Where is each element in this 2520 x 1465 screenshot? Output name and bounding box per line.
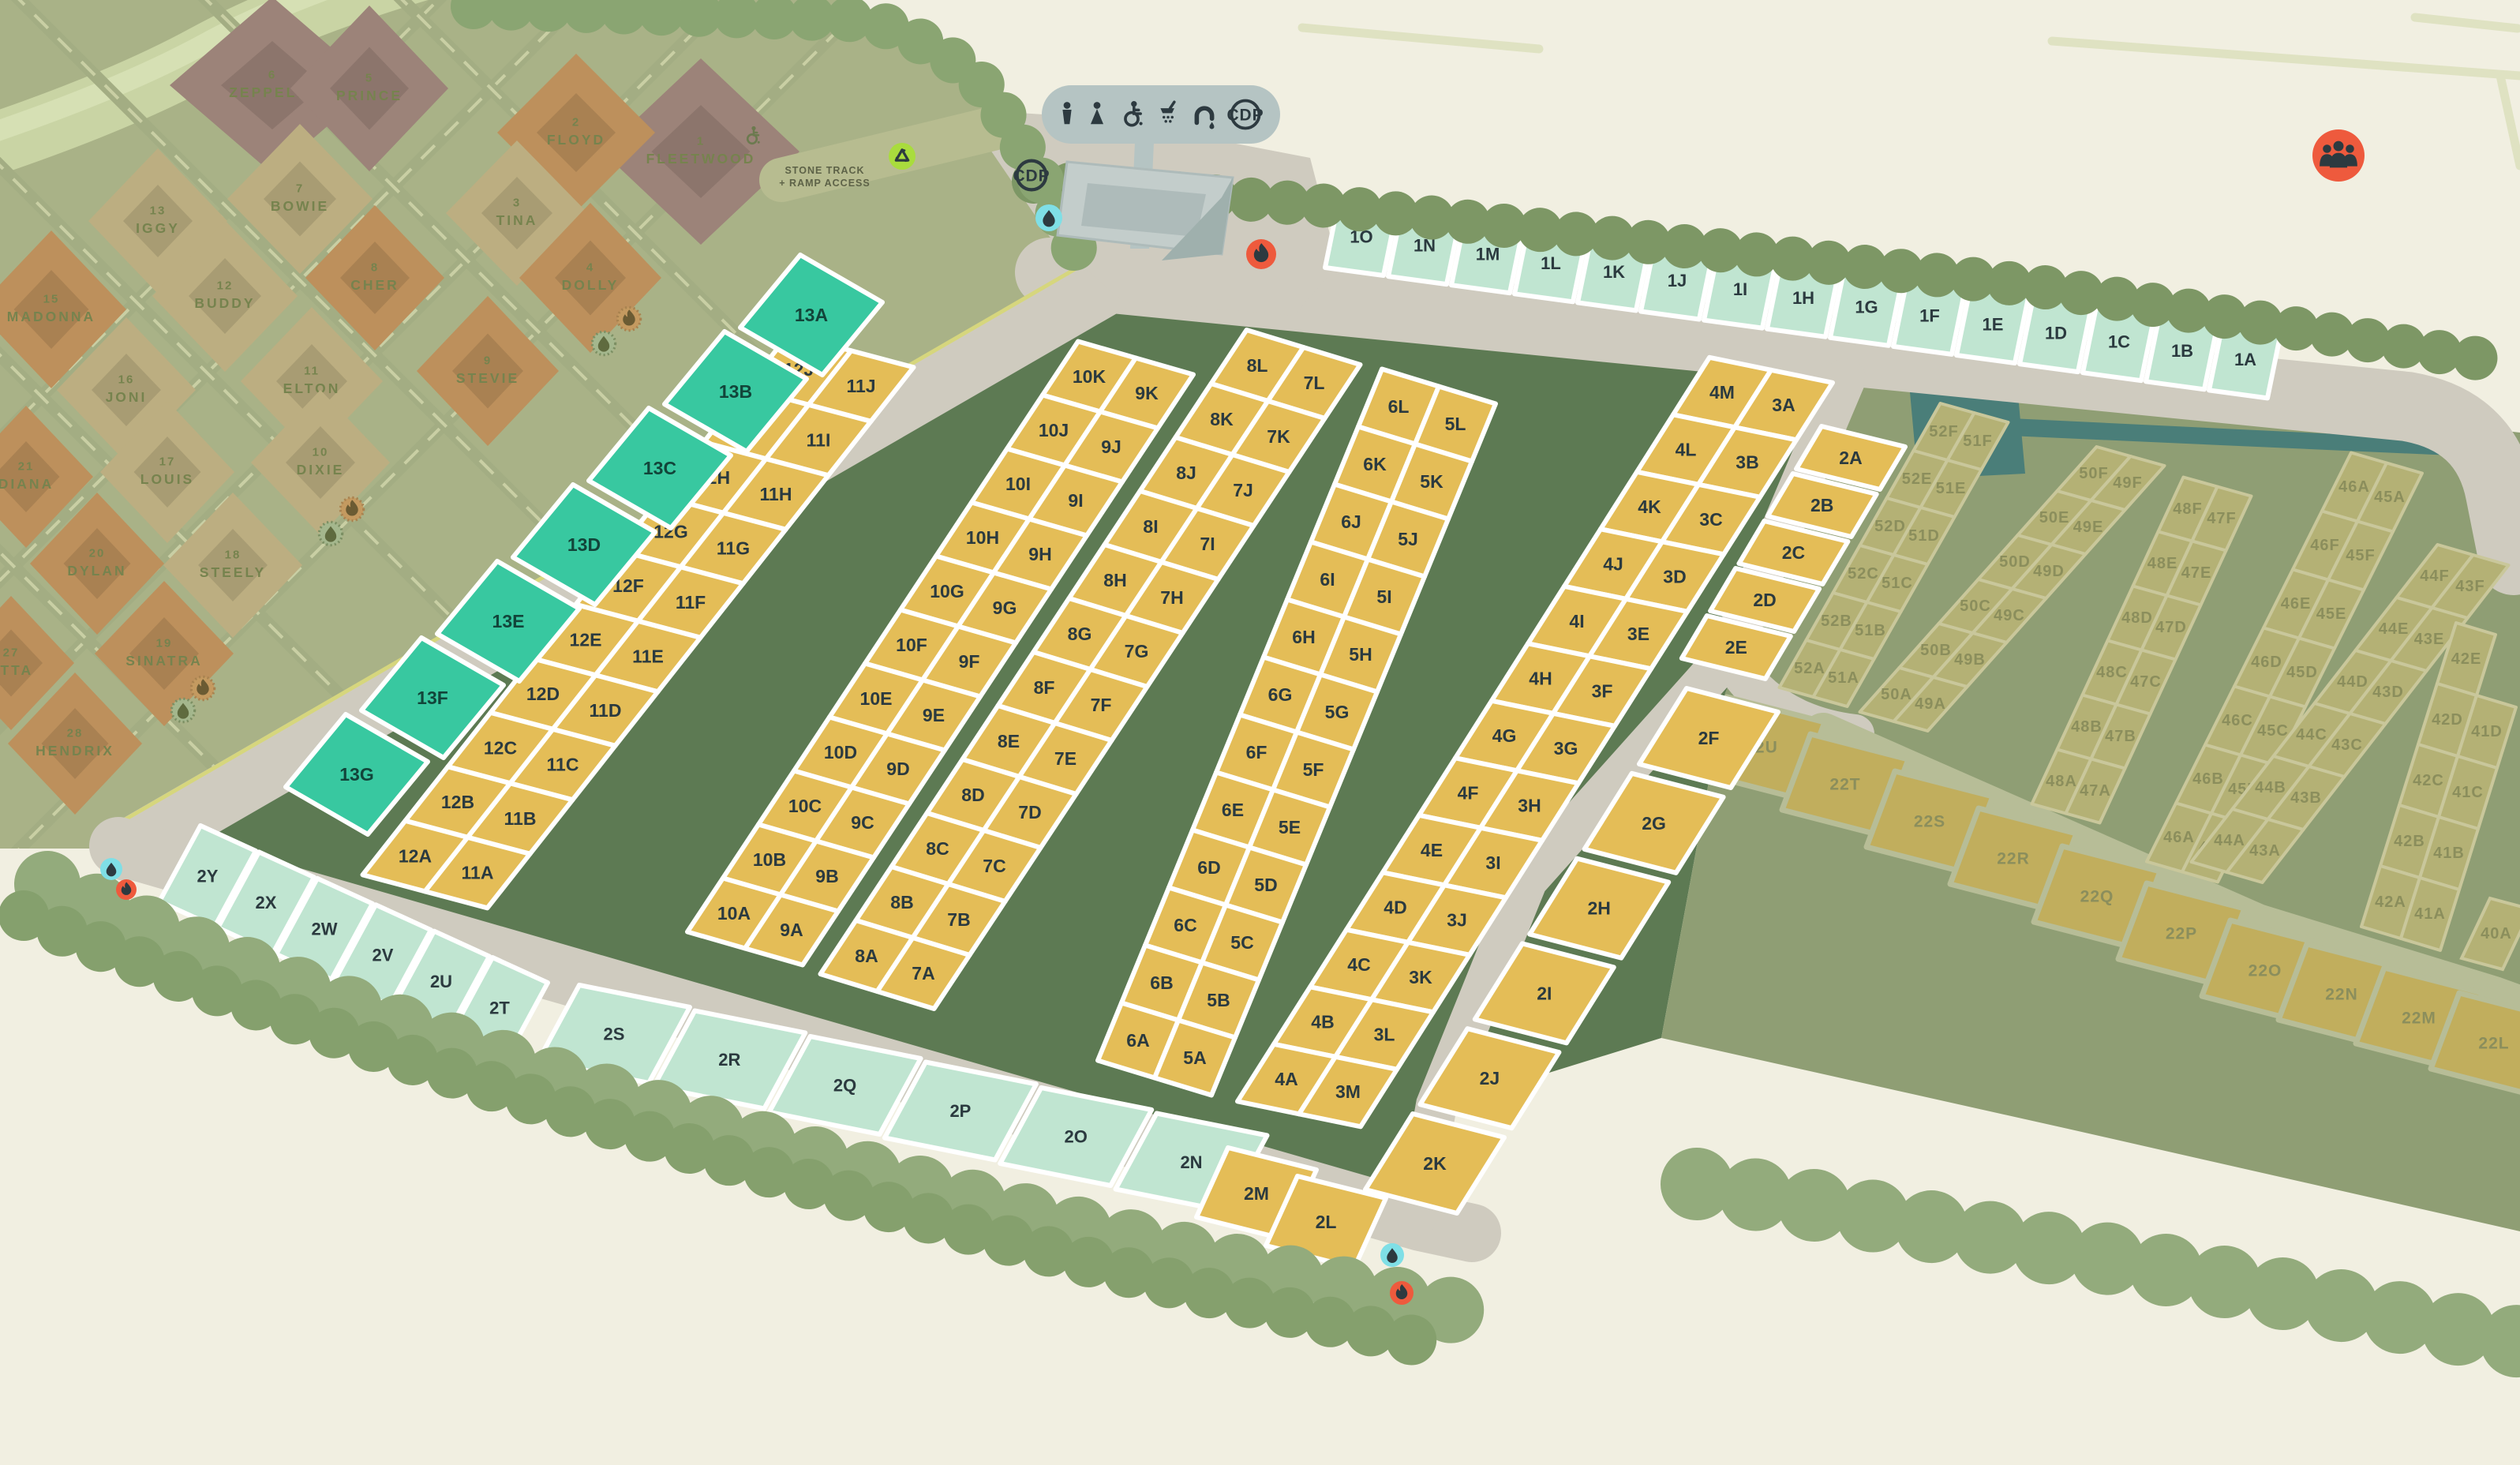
plot-label: 12D [526,684,560,704]
plot-label: 5F [1303,759,1324,780]
plot-number: 18 [225,549,242,562]
plot-label: 11H [760,484,792,504]
plot-label: 51A [1828,669,1859,687]
plot-label: 2I [1537,983,1552,1003]
plot-label: 12E [570,630,602,650]
plot-label: 5E [1279,817,1301,837]
water-icon-muted [319,522,342,545]
plot-label: 1H [1792,288,1814,308]
fire-icon [1246,239,1276,269]
plot-label: 46C [2222,712,2253,729]
plot-label: 10F [896,635,927,655]
plot-label: 1D [2045,324,2067,343]
plot-label: 6D [1197,857,1220,878]
plot-label: 44D [2337,673,2368,691]
plot-label: 11E [632,646,664,667]
fire-icon-muted [340,497,363,520]
plot-label: 50A [1881,686,1912,703]
plot-label: 7H [1160,587,1183,608]
plot-label: 50D [1999,553,2031,571]
plot-label: 4H [1529,669,1552,689]
plot-label: 46A [2338,478,2370,496]
plot-label: 11J [846,376,875,396]
plot-name: HENDRIX [36,743,114,759]
plot-name: IGGY [136,220,180,236]
plot-label: 43E [2414,631,2445,648]
plot-label: 6K [1363,454,1387,474]
plot-label: 49D [2033,563,2065,580]
plot-label: 2G [1642,813,1666,834]
plot-label: 1K [1603,262,1625,282]
plot-label: 5H [1349,644,1372,665]
plot-name: STEVIE [456,370,519,386]
plot-label: 4E [1421,840,1443,860]
plot-label: 1J [1668,271,1687,290]
fire-icon-muted [191,676,214,699]
plot-label: 1A [2234,350,2256,369]
plot-label: 42B [2394,833,2425,850]
plot-label: 5C [1230,932,1253,953]
plot-name: ETTA [0,662,33,678]
plot-label: 41D [2471,723,2503,740]
plot-label: 22Q [2080,888,2114,906]
plot-label: 7A [912,963,934,984]
plot-label: 1L [1541,253,1561,273]
plot-label: 3H [1518,796,1541,816]
plot-label: 1F [1919,305,1940,325]
plot-label: 10J [1039,420,1069,440]
plot-label: 7G [1125,641,1149,661]
plot-label: 51B [1855,622,1886,639]
plot-label: 42D [2432,711,2463,729]
plot-label: 50B [1920,642,1952,659]
plot-label: 3F [1592,681,1613,702]
water-icon-muted [592,332,615,354]
plot-label: 2R [718,1050,740,1070]
plot-label: 8F [1034,677,1055,698]
plot-label: 3A [1772,395,1795,415]
plot-label: 45D [2286,664,2318,681]
plot-label: 8E [998,731,1020,751]
plot-label: 13B [719,381,752,402]
plot-name: LOUIS [140,471,194,487]
plot-label: 9E [923,705,945,725]
plot-label: 52B [1821,613,1852,630]
plot-label: 8A [855,946,878,966]
plot-label: 10G [930,581,964,601]
plot-label: 49F [2113,474,2142,492]
plot-label: 10D [824,742,857,762]
plot-label: 2J [1480,1068,1500,1088]
plot-label: 3L [1374,1025,1395,1045]
plot-label: 8K [1210,409,1234,429]
plot-name: PRINCE [336,88,403,103]
plot-name: SINATRA [125,653,202,669]
plot-label: 4J [1603,554,1623,575]
plot-label: 2D [1753,590,1776,610]
plot-label: 49C [1994,607,2025,624]
plot-label: 8H [1103,570,1126,590]
plot-label: 11I [807,430,831,451]
plot-number: 10 [313,446,329,459]
plot-number: 5 [365,72,373,85]
plot-label: 52D [1874,518,1906,535]
plot-label: 8B [890,892,913,912]
plot-label: 9G [993,598,1017,618]
plot-number: 15 [43,293,60,306]
water-icon [100,858,122,880]
plot-label: 52E [1902,470,1933,488]
plot-name: ELTON [283,380,341,396]
plot-label: 6J [1341,511,1361,532]
plot-label: 3G [1554,738,1578,759]
plot-label: 4G [1492,725,1517,746]
plot-label: 2C [1782,542,1805,563]
plot-label: 1M [1476,245,1500,264]
plot-label: 22R [1997,850,2030,868]
plot-number: 27 [3,646,20,660]
plot-label: 1B [2171,341,2193,361]
plot-label: 13G [339,764,373,785]
plot-label: 41C [2452,784,2484,801]
plot-label: 47D [2155,619,2187,636]
plot-label: 47E [2181,564,2212,582]
plot-label: 2B [1810,495,1833,515]
plot-number: 1 [697,135,705,148]
plot-label: 22T [1829,776,1860,794]
plot-label: 47F [2207,510,2236,527]
plot-label: 1C [2108,332,2130,352]
plot-label: 6G [1268,684,1293,705]
plot-number: 6 [268,69,276,82]
plot-label: 48E [2147,555,2178,572]
plot-label: 51E [1936,480,1967,497]
plot-label: 22N [2325,986,2358,1004]
plot-label: 6C [1174,915,1196,935]
plot-label: 51F [1963,433,1992,450]
plot-number: 19 [156,637,173,650]
plot-name: FLOYD [547,132,605,148]
plot-label: 8D [961,785,984,805]
plot-label: 22O [2249,962,2282,980]
plot-label: 2A [1839,448,1862,468]
plot-label: 47B [2105,728,2136,745]
plot-label: 3E [1627,624,1649,644]
plot-label: 46A [2163,829,2195,846]
plot-label: 49A [1915,695,1946,713]
plot-label: 2N [1180,1152,1202,1172]
plot-label: 3C [1699,509,1722,530]
plot-label: 2U [430,972,452,991]
plot-label: 50F [2079,465,2108,482]
svg-text:CDP: CDP [1227,106,1264,124]
plot-label: 22M [2402,1010,2436,1028]
plot-label: 47A [2080,782,2111,800]
fire-icon [116,879,137,900]
plot-label: 44A [2214,832,2245,849]
water-icon-muted [171,699,194,721]
plot-label: 2F [1698,728,1720,748]
plot-number: 12 [217,279,234,293]
plot-label: 6H [1292,627,1315,647]
plot-label: 48D [2121,609,2153,627]
plot-label: 49B [1954,651,1986,669]
svg-text:CDP: CDP [1013,167,1050,185]
plot-label: 48B [2071,718,2102,736]
water-icon [1035,204,1062,231]
plot-label: 3B [1736,452,1758,473]
plot-label: 13A [795,305,828,325]
plot-label: 10I [1005,474,1031,494]
plot-label: 1E [1983,315,2004,335]
plot-label: 8L [1247,355,1268,376]
plot-label: 9I [1068,490,1083,511]
plot-label: 2E [1725,637,1747,658]
plot-label: 45F [2346,547,2375,564]
plot-label: 44F [2420,568,2449,585]
plot-name: JONI [106,389,148,405]
plot-label: 7L [1304,373,1325,393]
plot-label: 7B [947,909,970,930]
plot-label: 48A [2046,773,2077,790]
plot-label: 6A [1126,1030,1149,1051]
plot-label: 46E [2281,595,2312,613]
plot-label: 5A [1183,1047,1206,1068]
plot-label: 48F [2173,500,2202,518]
plot-label: 45A [2374,489,2406,506]
plot-label: 4B [1311,1012,1334,1032]
plot-label: 9A [780,920,803,940]
fire-icon-muted [617,307,640,330]
plot-label: 8C [926,838,949,859]
plot-number: 2 [572,116,580,129]
fire-icon [1390,1281,1414,1305]
plot-label: 51D [1908,527,1940,545]
plot-name: BUDDY [194,295,255,311]
plot-label: 50E [2039,509,2070,526]
plot-label: 11C [547,755,579,775]
plot-label: 4F [1458,783,1479,804]
plot-label: 6E [1222,800,1244,820]
plot-label: 9K [1135,383,1159,403]
plot-label: 11F [676,592,706,613]
plot-name: CHER [350,277,399,293]
plot-label: 46D [2251,654,2282,671]
plot-label: 4D [1384,897,1406,918]
plot-label: 43D [2372,684,2404,701]
plot-label: 51C [1882,575,1913,592]
plot-label: 4C [1347,954,1370,975]
plot-label: 7K [1267,426,1290,447]
plot-number: 21 [18,460,35,474]
plot-label: 41A [2414,905,2446,923]
plot-label: 10B [753,849,786,870]
plot-label: 12B [441,792,474,812]
plot-label: 1I [1733,279,1747,299]
plot-label: 4M [1709,382,1735,403]
plot-label: 9J [1101,437,1121,457]
plot-label: 41B [2433,845,2465,862]
recycle-icon [889,143,916,170]
plot-label: 6I [1320,569,1335,590]
plot-label: 9F [959,651,980,672]
plot-label: 4I [1569,611,1584,631]
plot-number: 9 [484,354,492,368]
plot-name: DIANA [0,476,54,492]
plot-label: 3K [1409,967,1432,987]
plot-label: 9H [1028,544,1051,564]
plot-number: 11 [304,365,320,378]
plot-label: 49E [2073,519,2104,536]
plot-label: 7C [983,856,1005,876]
plot-label: 5K [1420,471,1443,492]
plot-label: 2W [312,919,338,939]
plot-label: 8I [1143,516,1158,537]
stone-track-label-2: + RAMP ACCESS [779,178,870,189]
plot-label: 40A [2481,925,2512,942]
plot-label: 2P [949,1101,971,1121]
plot-label: 44C [2296,726,2327,744]
plot-name: BOWIE [271,198,329,214]
plot-label: 8J [1176,463,1196,483]
plot-name: TINA [496,212,538,228]
site-map: 6ZEPPELIN5PRINCE1FLEETWOOD2FLOYD3TINA7BO… [0,0,2520,1465]
plot-label: 7J [1233,480,1253,500]
plot-number: 28 [67,727,84,740]
plot-label: 7E [1054,748,1077,769]
plot-label: 52A [1794,660,1825,677]
plot-label: 43F [2455,578,2484,595]
water-icon [1380,1243,1404,1267]
plot-label: 5G [1325,702,1350,722]
plot-label: 45C [2257,722,2289,740]
plot-label: 52C [1848,565,1879,583]
plot-label: 42A [2375,894,2406,911]
stone-track-label-1: STONE TRACK [784,165,864,176]
plot-number: 17 [159,455,176,469]
plot-label: 10K [1073,366,1106,387]
plot-label: 7F [1091,695,1112,715]
plot-label: 43B [2290,789,2322,807]
plot-label: 44B [2255,779,2286,796]
plot-label: 2L [1316,1212,1337,1232]
plot-label: 52F [1929,423,1958,440]
plot-number: 3 [513,197,521,210]
plot-label: 4L [1676,440,1697,460]
plot-number: 4 [586,261,594,275]
plot-label: 9D [886,759,909,779]
plot-label: 5D [1254,875,1277,895]
plot-label: 50C [1960,598,1991,615]
plot-number: 20 [89,547,106,560]
plot-label: 5I [1376,586,1391,607]
plot-label: 13D [567,534,601,555]
plot-label: 9B [815,866,838,886]
plot-label: 10E [860,688,893,709]
plot-name: DIXIE [297,462,345,478]
plot-label: 10A [717,903,751,924]
plot-label: 48C [2096,664,2128,681]
plot-name: DOLLY [562,277,620,293]
plot-label: 2H [1587,898,1610,919]
plot-name: STEELY [200,564,266,580]
plot-label: 7I [1200,534,1215,554]
plot-label: 47C [2130,673,2162,691]
plot-number: 7 [296,182,304,196]
plot-label: 46B [2192,770,2224,788]
plot-label: 5J [1398,529,1418,549]
plot-label: 2M [1244,1183,1269,1204]
plot-label: 11D [590,700,622,721]
plot-label: 43A [2249,842,2281,860]
plot-label: 10H [966,527,999,548]
community-icon [2312,129,2365,182]
plot-name: FLEETWOOD [646,151,756,167]
plot-label: 6L [1388,396,1410,417]
plot-number: 8 [371,261,379,275]
plot-label: 5L [1445,414,1466,434]
plot-label: 44E [2379,620,2410,638]
plot-name: DYLAN [67,563,126,579]
plot-label: 8G [1068,624,1092,644]
plot-label: 2Y [197,867,219,886]
plot-name: MADONNA [7,309,95,324]
plot-label: 22L [2478,1035,2509,1053]
plot-label: 2T [489,999,510,1018]
plot-label: 4K [1638,496,1661,517]
plot-number: 16 [118,373,135,387]
plot-label: 3M [1335,1081,1361,1102]
plot-label: 3D [1663,567,1686,587]
plot-label: 2X [256,893,277,912]
plot-label: 6F [1246,742,1267,762]
plot-label: 22P [2166,925,2197,943]
plot-label: 5B [1207,990,1230,1010]
plot-label: 43C [2331,736,2363,754]
plot-label: 13F [417,688,448,708]
plot-label: 4A [1275,1069,1297,1089]
plot-label: 22S [1914,813,1945,831]
plot-label: 13E [492,611,525,631]
plot-label: 2O [1065,1127,1088,1147]
plot-label: 7D [1018,802,1041,822]
plot-label: 3J [1447,910,1467,931]
plot-number: 13 [150,204,167,218]
plot-label: 2V [373,946,394,965]
plot-label: 12C [484,738,517,759]
plot-label: 42C [2413,772,2444,789]
plot-label: 12A [399,846,432,867]
plot-label: 11B [504,808,537,829]
plot-label: 46F [2310,537,2339,554]
plot-label: 2Q [833,1076,856,1096]
plot-label: 11G [717,538,750,559]
plot-label: 11A [462,863,494,883]
plot-label: 3I [1485,852,1500,873]
plot-label: 45E [2316,605,2347,623]
plot-label: 1G [1855,297,1878,317]
site-map-canvas: 6ZEPPELIN5PRINCE1FLEETWOOD2FLOYD3TINA7BO… [0,0,2520,1465]
plot-label: 13C [643,458,676,478]
plot-label: 42E [2451,650,2482,668]
plot-label: 9C [851,812,874,833]
plot-label: 2S [604,1025,625,1044]
plot-label: 6B [1150,972,1173,993]
plot-label: 10C [788,796,822,816]
plot-label: 2K [1423,1153,1447,1174]
